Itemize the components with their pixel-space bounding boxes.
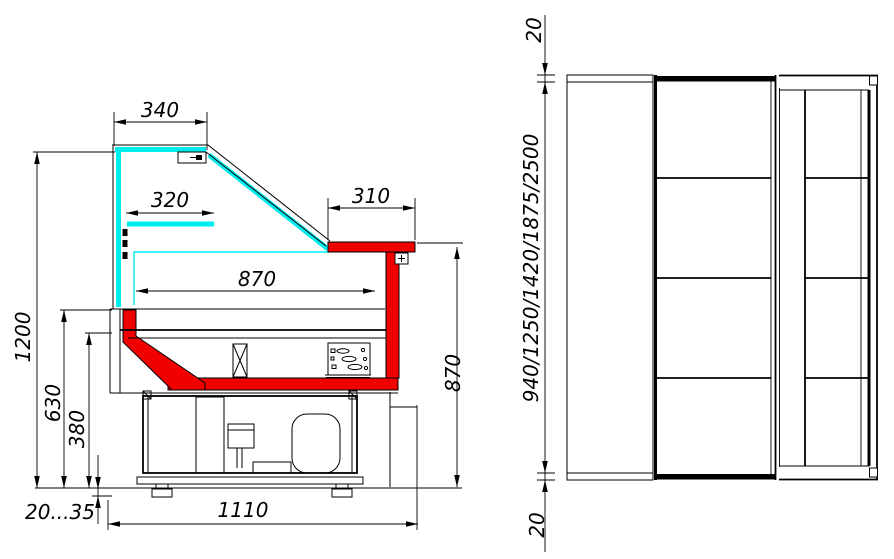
display-case-drawing: 340 320 310 870 [0,0,894,559]
dimension-320: 320 [126,188,214,216]
dim-label-320: 320 [151,188,189,212]
lamp-icon [196,155,202,160]
corner-block-bottom [870,468,878,477]
dim-label-20-top: 20 [522,17,546,42]
dimension-870-height: 870 [417,243,465,487]
side-section-view: 340 320 310 870 [11,98,465,530]
dim-label-870-width: 870 [238,267,276,291]
dim-label-310: 310 [352,184,390,208]
dim-label-1200: 1200 [11,312,35,363]
adjustable-feet [152,484,352,497]
evaporator-brace [233,344,247,377]
technical-drawing-page: 340 320 310 870 [0,0,894,559]
plan-dimensions: 20 940/1250/1420/1875/2500 20 [519,15,555,552]
dim-label-1110: 1110 [218,498,269,522]
base-rail [137,477,363,484]
dim-label-20-bottom: 20 [525,512,549,537]
deck-highlight [123,242,415,390]
price-rail-detail [395,253,408,264]
compressor [292,414,340,473]
dimension-870-width: 870 [136,267,375,294]
mount-platform [253,462,291,473]
plan-glass-joints [657,178,869,378]
dim-label-630: 630 [41,384,65,422]
dim-label-foot-adjust: 20...35 [25,500,95,524]
corner-block-top [870,76,878,85]
dimension-340: 340 [114,98,207,150]
plan-view: 20 940/1250/1420/1875/2500 20 [519,15,878,552]
dim-label-lengths: 940/1250/1420/1875/2500 [519,134,543,403]
dimension-1110: 1110 [108,405,418,530]
electrical-box [228,424,254,468]
dim-label-340: 340 [141,98,179,122]
dimension-380: 380 [65,333,112,488]
glass-panels [115,149,329,307]
dimension-310: 310 [328,184,415,240]
dimension-630: 630 [41,310,112,488]
dimension-foot-adjust: 20...35 [25,455,112,524]
case-body-outline [110,309,417,487]
dim-label-870-height: 870 [441,354,465,392]
terminal-box [325,343,371,378]
dim-label-380: 380 [65,410,89,448]
